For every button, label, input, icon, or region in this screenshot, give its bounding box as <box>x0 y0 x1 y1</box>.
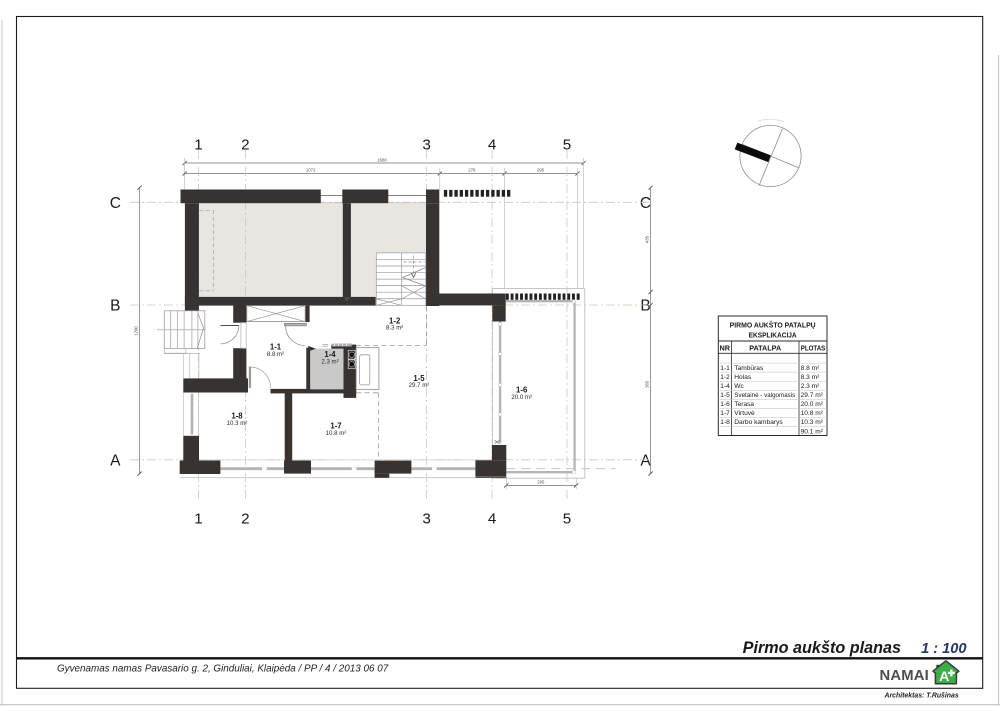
svg-text:Gyvenamas namas Pavasario g. 2: Gyvenamas namas Pavasario g. 2, Gindulia… <box>57 663 389 674</box>
svg-text:1-5: 1-5 <box>720 392 730 399</box>
svg-text:8.8 m²: 8.8 m² <box>801 365 820 372</box>
svg-text:1: 1 <box>194 510 202 527</box>
svg-text:Terasa: Terasa <box>734 401 754 408</box>
svg-text:20.0 m²: 20.0 m² <box>511 394 532 401</box>
svg-text:435: 435 <box>644 235 649 243</box>
svg-text:A: A <box>939 669 949 685</box>
svg-text:1-1: 1-1 <box>720 365 730 372</box>
svg-text:C: C <box>640 195 651 212</box>
svg-text:Virtuvė: Virtuvė <box>734 410 755 417</box>
svg-text:1200: 1200 <box>133 326 138 336</box>
svg-text:A: A <box>110 453 121 470</box>
svg-text:2.3 m²: 2.3 m² <box>321 359 338 366</box>
svg-text:B: B <box>110 298 120 315</box>
svg-text:29.7 m²: 29.7 m² <box>801 392 824 399</box>
svg-text:1-7: 1-7 <box>720 410 730 417</box>
svg-text:10.3 m²: 10.3 m² <box>801 419 824 426</box>
svg-text:8.3 m²: 8.3 m² <box>801 374 820 381</box>
svg-text:1-2: 1-2 <box>720 374 730 381</box>
svg-text:1-4: 1-4 <box>720 383 730 390</box>
svg-text:3: 3 <box>422 510 430 527</box>
svg-text:295: 295 <box>537 168 545 173</box>
svg-text:8.8 m²: 8.8 m² <box>267 351 284 358</box>
svg-text:2.3 m²: 2.3 m² <box>801 383 820 390</box>
svg-text:PLOTAS: PLOTAS <box>801 343 826 352</box>
svg-text:8.3 m²: 8.3 m² <box>386 325 403 332</box>
svg-text:Pirmo aukšto planas: Pirmo aukšto planas <box>743 639 901 657</box>
svg-text:10.8 m²: 10.8 m² <box>801 410 824 417</box>
svg-text:Darbo kambarys: Darbo kambarys <box>734 419 783 426</box>
svg-text:A: A <box>640 453 651 470</box>
svg-text:1-8: 1-8 <box>720 419 730 426</box>
svg-text:5: 5 <box>563 510 571 527</box>
svg-text:Wc: Wc <box>734 383 744 390</box>
svg-text:NR: NR <box>720 343 731 352</box>
svg-text:1-6: 1-6 <box>720 401 730 408</box>
svg-text:1072: 1072 <box>306 168 316 173</box>
svg-text:Svetainė - valgomasis: Svetainė - valgomasis <box>734 392 796 399</box>
svg-text:90.1 m²: 90.1 m² <box>801 428 824 435</box>
svg-text:2: 2 <box>241 510 249 527</box>
svg-text:Tambūras: Tambūras <box>734 365 764 372</box>
svg-text:PIRMO AUKŠTO PATALPŲ: PIRMO AUKŠTO PATALPŲ <box>730 320 816 329</box>
svg-text:NAMAI: NAMAI <box>880 668 930 684</box>
svg-text:278: 278 <box>468 168 476 173</box>
svg-text:Architektas: T.Rušinas: Architektas: T.Rušinas <box>884 693 959 700</box>
svg-text:295: 295 <box>537 479 545 484</box>
svg-text:1680: 1680 <box>377 157 387 162</box>
svg-text:365: 365 <box>644 380 649 388</box>
svg-text:4: 4 <box>488 510 496 527</box>
svg-text:10.3 m²: 10.3 m² <box>227 420 248 427</box>
svg-text:C: C <box>110 195 121 212</box>
svg-text:Holas: Holas <box>734 374 752 381</box>
svg-text:20.0 m²: 20.0 m² <box>801 401 824 408</box>
svg-text:10.8 m²: 10.8 m² <box>326 430 347 437</box>
svg-text:29.7 m²: 29.7 m² <box>409 382 430 389</box>
svg-text:1 : 100: 1 : 100 <box>921 641 966 657</box>
svg-text:EKSPLIKACIJA: EKSPLIKACIJA <box>749 330 797 339</box>
svg-text:PATALPA: PATALPA <box>749 343 781 352</box>
